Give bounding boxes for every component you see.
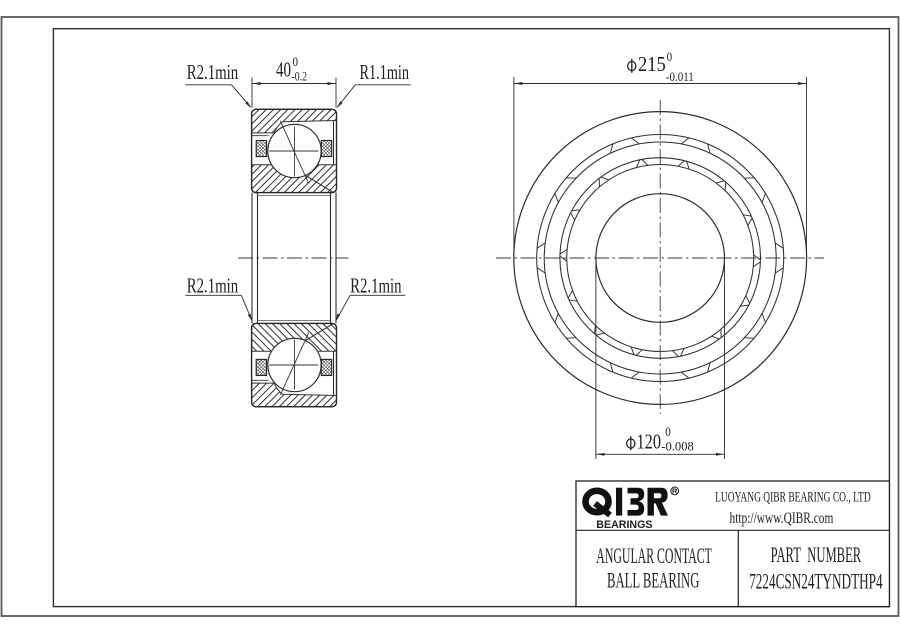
svg-text:7224CSN24TYNDTHP4: 7224CSN24TYNDTHP4 [749, 568, 882, 593]
svg-text:0: 0 [293, 55, 299, 69]
svg-text:R2.1min: R2.1min [350, 274, 402, 298]
svg-text:215: 215 [638, 52, 666, 76]
svg-text:0: 0 [667, 50, 673, 64]
svg-text:PART NUMBER: PART NUMBER [771, 542, 862, 567]
svg-text:BEARINGS: BEARINGS [596, 519, 652, 531]
svg-text:LUOYANG QIBR BEARING CO., LTD: LUOYANG QIBR BEARING CO., LTD [715, 488, 871, 505]
svg-text:R: R [672, 487, 678, 496]
svg-text:BALL BEARING: BALL BEARING [607, 567, 699, 592]
svg-text:40: 40 [276, 57, 291, 81]
svg-text:-0.011: -0.011 [666, 70, 694, 84]
svg-text:120: 120 [637, 430, 662, 454]
svg-text:-0.008: -0.008 [661, 440, 694, 454]
svg-text:0: 0 [665, 425, 671, 439]
svg-text:R2.1min: R2.1min [187, 60, 239, 84]
svg-text:R1.1min: R1.1min [360, 60, 410, 84]
svg-text:-0.2: -0.2 [292, 70, 308, 84]
svg-text:http://www.QIBR.com: http://www.QIBR.com [730, 510, 834, 527]
svg-text:R2.1min: R2.1min [187, 274, 239, 298]
svg-text:ANGULAR CONTACT: ANGULAR CONTACT [596, 543, 712, 568]
